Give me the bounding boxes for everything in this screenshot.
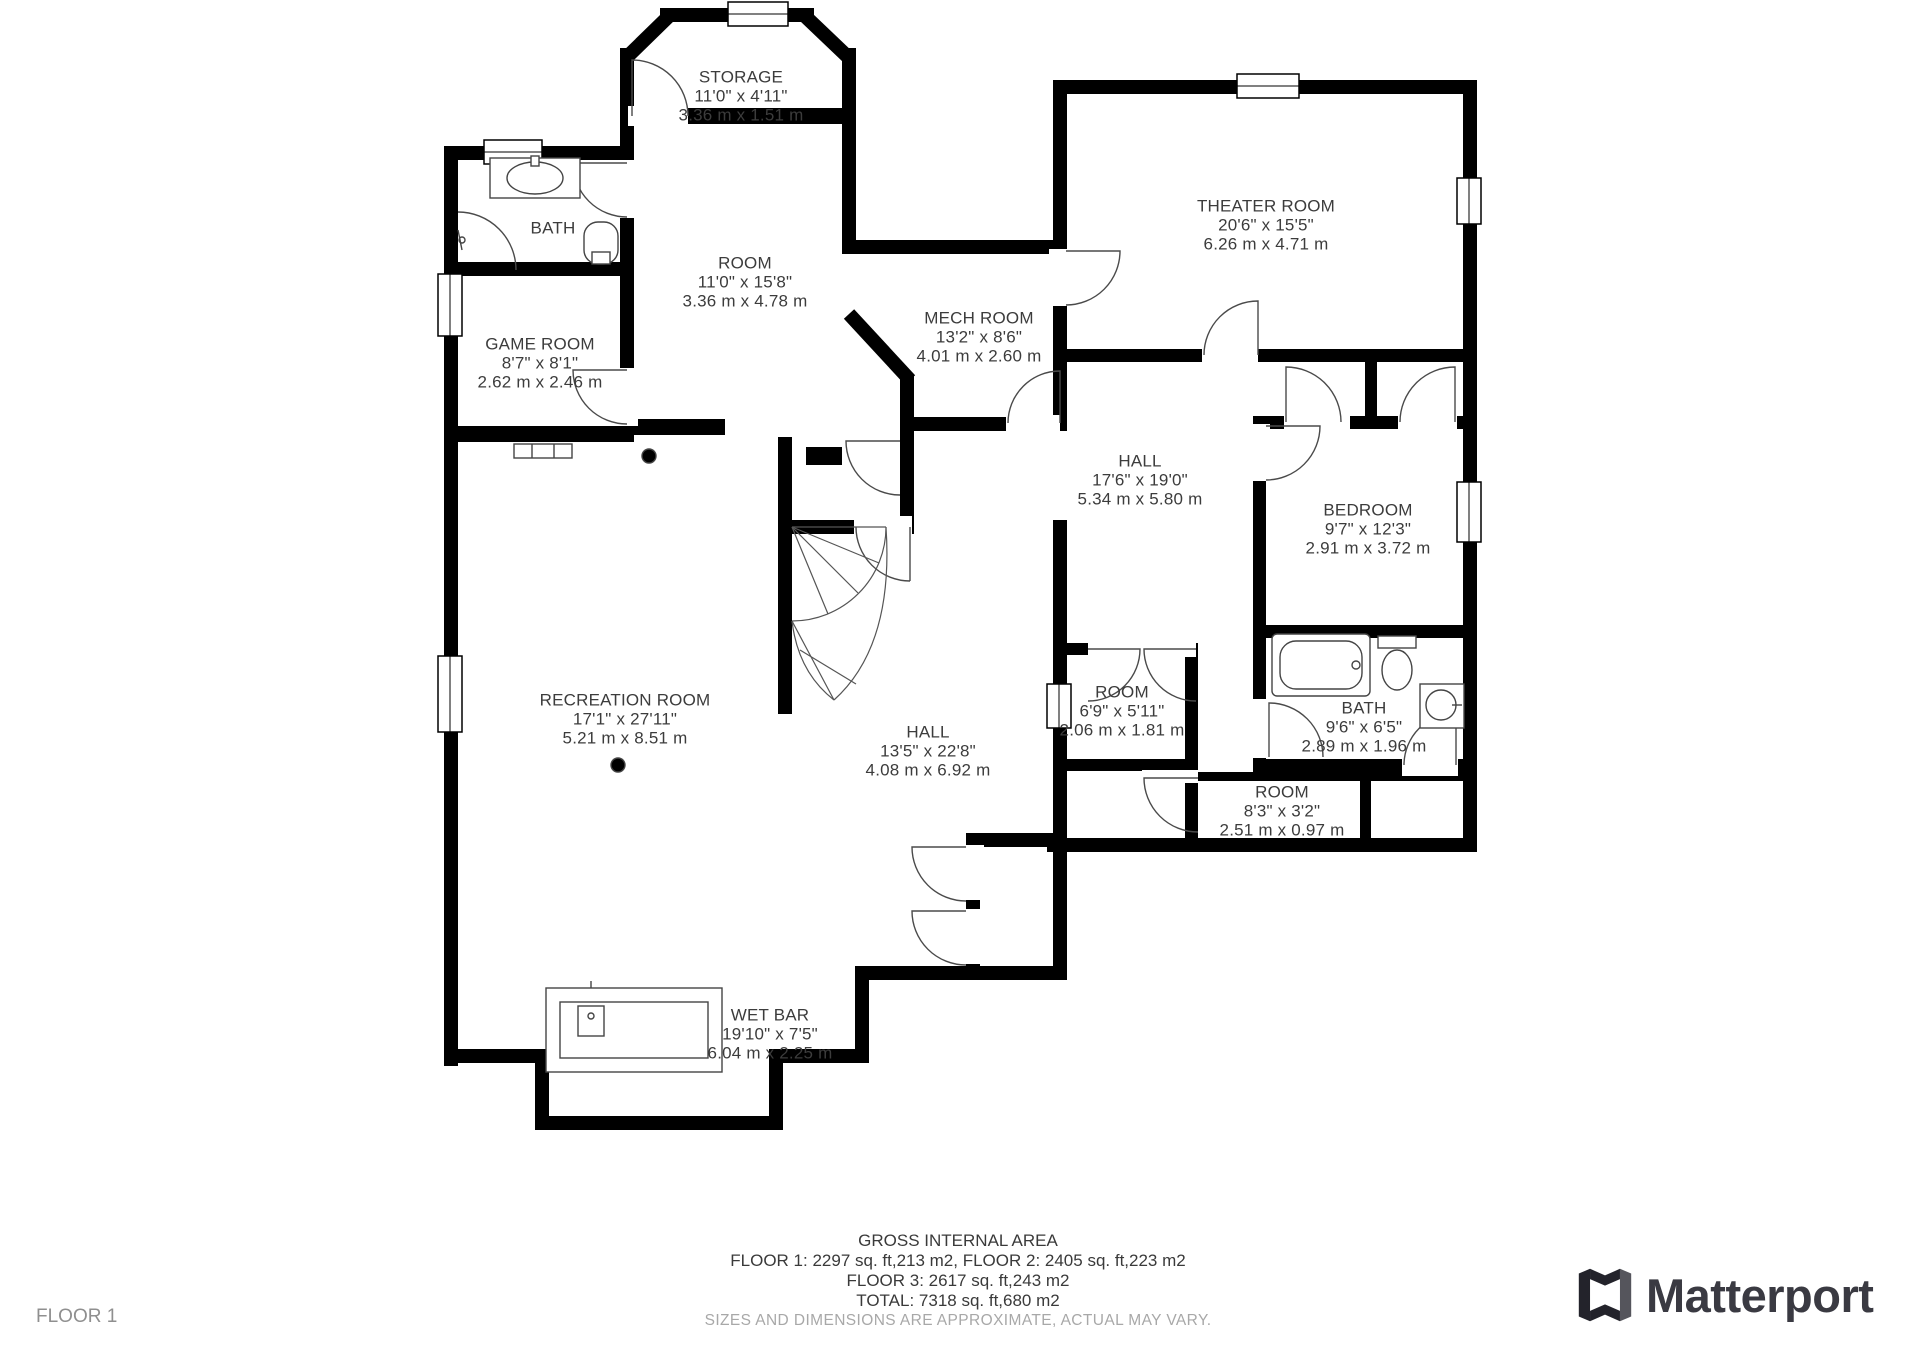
gia-title: GROSS INTERNAL AREA	[705, 1231, 1212, 1251]
room-label-bath-1: BATH	[531, 219, 576, 238]
staircase	[792, 527, 887, 700]
room-label-theater: THEATER ROOM 20'6" x 15'5" 6.26 m x 4.71…	[1197, 197, 1335, 254]
room-label-storage: STORAGE 11'0" x 4'11" 3.36 m x 1.51 m	[679, 68, 804, 125]
room-label-room-top: ROOM 11'0" x 15'8" 3.36 m x 4.78 m	[683, 254, 808, 311]
walls	[444, 8, 1477, 1130]
room-label-game-room: GAME ROOM 8'7" x 8'1" 2.62 m x 2.46 m	[478, 335, 603, 392]
room-label-hall-2: HALL 13'5" x 22'8" 4.08 m x 6.92 m	[866, 723, 991, 780]
floor-plan-drawing	[0, 0, 1920, 1358]
bath2-sink	[1426, 690, 1456, 720]
room-label-room-back: ROOM 8'3" x 3'2" 2.51 m x 0.97 m	[1220, 783, 1345, 840]
gia-line2: FLOOR 3: 2617 sq. ft,243 m2	[705, 1271, 1212, 1291]
floorplan-page: STORAGE 11'0" x 4'11" 3.36 m x 1.51 m BA…	[0, 0, 1920, 1358]
wet-bar-sink	[578, 1006, 604, 1036]
room-label-mech-room: MECH ROOM 13'2" x 8'6" 4.01 m x 2.60 m	[917, 309, 1042, 366]
column-dot	[611, 758, 625, 772]
column-dot	[642, 449, 656, 463]
floor-indicator: FLOOR 1	[36, 1306, 117, 1328]
matterport-logo-text: Matterport	[1646, 1268, 1873, 1323]
gia-disclaimer: SIZES AND DIMENSIONS ARE APPROXIMATE, AC…	[705, 1311, 1212, 1331]
fixtures	[458, 156, 1464, 1072]
bath2-toilet	[1378, 636, 1416, 648]
room-label-recreation: RECREATION ROOM 17'1" x 27'11" 5.21 m x …	[540, 691, 711, 748]
gross-internal-area: GROSS INTERNAL AREA FLOOR 1: 2297 sq. ft…	[705, 1231, 1212, 1331]
bath1-faucet	[531, 156, 539, 166]
column-block	[806, 447, 842, 465]
room-label-hall-1: HALL 17'6" x 19'0" 5.34 m x 5.80 m	[1078, 452, 1203, 509]
gia-line1: FLOOR 1: 2297 sq. ft,213 m2, FLOOR 2: 24…	[705, 1251, 1212, 1271]
matterport-logo: Matterport	[1578, 1266, 1873, 1324]
vent	[514, 444, 572, 458]
room-label-bath-2: BATH 9'6" x 6'5" 2.89 m x 1.96 m	[1302, 699, 1427, 756]
matterport-logo-icon	[1578, 1266, 1632, 1324]
gia-line3: TOTAL: 7318 sq. ft,680 m2	[705, 1291, 1212, 1311]
room-label-room-small: ROOM 6'9" x 5'11" 2.06 m x 1.81 m	[1060, 683, 1185, 740]
room-label-bedroom: BEDROOM 9'7" x 12'3" 2.91 m x 3.72 m	[1306, 501, 1431, 558]
bath1-sink	[507, 162, 563, 194]
room-label-wet-bar: WET BAR 19'10" x 7'5" 6.04 m x 2.25 m	[708, 1006, 833, 1063]
